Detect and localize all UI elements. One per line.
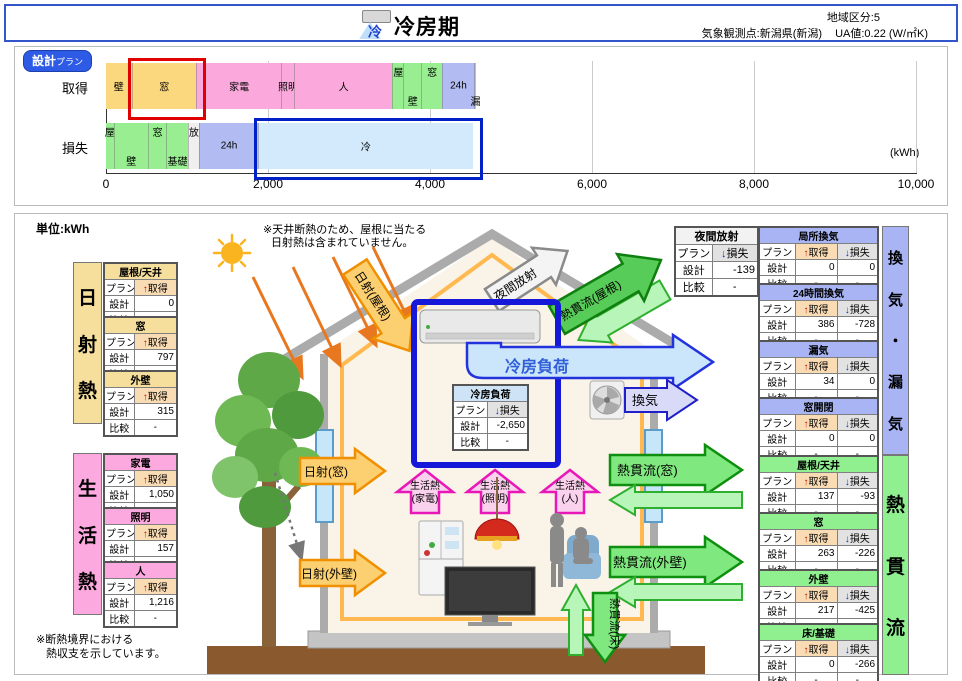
axis-tick-label: 10,000 [886, 177, 946, 191]
stat-table: 床/基礎プラン↑取得↓損失設計0-266比較-- [758, 623, 879, 681]
bar-segment[interactable]: 人 [294, 63, 392, 109]
ventilation-strip: 換気・漏気 [882, 226, 909, 455]
design-plan-badge[interactable]: 設計プラン [23, 50, 92, 72]
ventilation-arrow-label: 換気 [632, 393, 658, 408]
bar-segment-label: 放 [189, 124, 199, 139]
roof-insulation-note-line2: 日射熱は含まれていません。 [271, 235, 413, 249]
bar-segment-label: 24h [450, 81, 467, 92]
trans-floor-arrow-label: 熱貫流(床) [608, 598, 622, 649]
transmission-strip: 熱貫流 [882, 455, 909, 675]
night-radiation-table: 夜間放射プラン↓損失設計-139比較- [674, 226, 759, 297]
tree [212, 352, 324, 647]
ground [207, 646, 705, 674]
bar-segment[interactable]: 放 [188, 123, 199, 169]
stat-table: 人プラン↑取得設計1,216比較- [103, 561, 178, 628]
bar-segment-label: 屋 [393, 64, 403, 79]
solar-heat-strip: 日射熱 [73, 262, 102, 424]
bar-segment-label: 基礎 [168, 153, 188, 168]
living-heat-strip: 生活熱 [73, 453, 102, 615]
fan-icon [590, 381, 624, 419]
svg-text:(家電): (家電) [412, 492, 439, 505]
bar-segment-label: 窓 [427, 64, 437, 79]
ua-value-label: UA値:0.22 (W/㎡K) [835, 28, 928, 40]
bar-segment[interactable]: 窓 [148, 123, 166, 169]
air-conditioner-icon [420, 310, 540, 343]
bar-segment[interactable]: 屋 [106, 123, 114, 169]
header-bar: 冷 冷房期 地域区分:5 気象観測点:新潟県(新潟) UA値:0.22 (W/㎡… [4, 4, 958, 42]
cooling-load-table: 冷房負荷プラン↓損失設計-2,650比較- [452, 384, 529, 451]
bar-segment[interactable]: 屋 [392, 63, 403, 109]
bar-segment[interactable]: 家電 [196, 63, 281, 109]
bar-segment[interactable]: 24h [199, 123, 258, 169]
bar-segment[interactable]: 壁 [403, 63, 421, 109]
sun-icon [214, 235, 250, 271]
weather-info: 気象観測点:新潟県(新潟) UA値:0.22 (W/㎡K) [692, 25, 928, 41]
unit-note: 単位:kWh [36, 220, 89, 237]
bar-segment[interactable]: 基礎 [166, 123, 188, 169]
x-axis-line [106, 173, 917, 174]
stat-table: 外壁プラン↑取得設計315比較- [103, 370, 178, 437]
grid-line [916, 61, 917, 173]
bar-segment[interactable]: 壁 [114, 123, 148, 169]
bar-segment-label: 人 [339, 79, 349, 94]
bar-segment[interactable]: 照明 [281, 63, 294, 109]
axis-tick-label: 0 [76, 177, 136, 191]
trans-wall-return-arrow [610, 577, 742, 607]
bar-segment-label: 壁 [126, 153, 136, 168]
bar-row-label: 損失 [51, 138, 99, 157]
energy-balance-chart: 設計プラン (kWh) 02,0004,0006,0008,00010,000取… [14, 46, 948, 206]
bar-segment[interactable]: 24h [442, 63, 473, 109]
cooling-ac-icon: 冷 [361, 9, 391, 41]
svg-text:生活熱: 生活熱 [480, 479, 510, 492]
bar-segment-label: 壁 [408, 93, 418, 108]
badge-sub-label: プラン [56, 57, 83, 67]
bar-segment-label: 家電 [229, 79, 249, 94]
stat-table: 窓開閉プラン↑取得↓損失設計00比較-- [758, 397, 879, 464]
bar-segment-label: 窓 [153, 124, 163, 139]
cooling-load-arrow-label: 冷房負荷 [505, 357, 569, 376]
grid-line [754, 61, 755, 173]
bar-segment[interactable]: 窓 [421, 63, 442, 109]
solar-window-arrow-label: 日射(窓) [304, 464, 348, 479]
svg-text:生活熱: 生活熱 [555, 479, 585, 492]
trans-wall-arrow-label: 熱貫流(外壁) [613, 555, 687, 570]
bar-segment-label: 24h [221, 141, 238, 152]
grid-line [592, 61, 593, 173]
bar-segment-label: 壁 [114, 79, 124, 94]
axis-unit-label: (kWh) [890, 147, 919, 159]
trans-window-arrow-label: 熱貫流(窓) [617, 463, 678, 478]
axis-tick-label: 6,000 [562, 177, 622, 191]
trans-window-return-arrow [610, 485, 742, 515]
boundary-note: ※断熱境界における 熱収支を示しています。 [36, 633, 166, 661]
axis-tick-label: 8,000 [724, 177, 784, 191]
svg-text:(人): (人) [562, 493, 579, 505]
page-title: 冷房期 [394, 11, 460, 41]
svg-text:生活熱: 生活熱 [410, 479, 440, 492]
bar-segment[interactable]: 漏 [474, 63, 477, 109]
roof-insulation-note-line1: ※天井断熱のため、屋根に当たる [263, 222, 426, 236]
region-class-label: 地域区分:5 [827, 9, 880, 25]
badge-main-label: 設計 [32, 54, 56, 68]
bar-segment-label: 漏 [470, 93, 480, 108]
bar-row-label: 取得 [51, 78, 99, 97]
weather-station-label: 気象観測点:新潟県(新潟) [702, 28, 822, 40]
segment-highlight-box [128, 58, 207, 120]
segment-highlight-box [254, 118, 483, 180]
svg-text:(照明): (照明) [482, 493, 509, 505]
solar-wall-arrow-label: 日射(外壁) [301, 566, 357, 581]
app-window: 冷 冷房期 地域区分:5 気象観測点:新潟県(新潟) UA値:0.22 (W/㎡… [0, 0, 962, 681]
